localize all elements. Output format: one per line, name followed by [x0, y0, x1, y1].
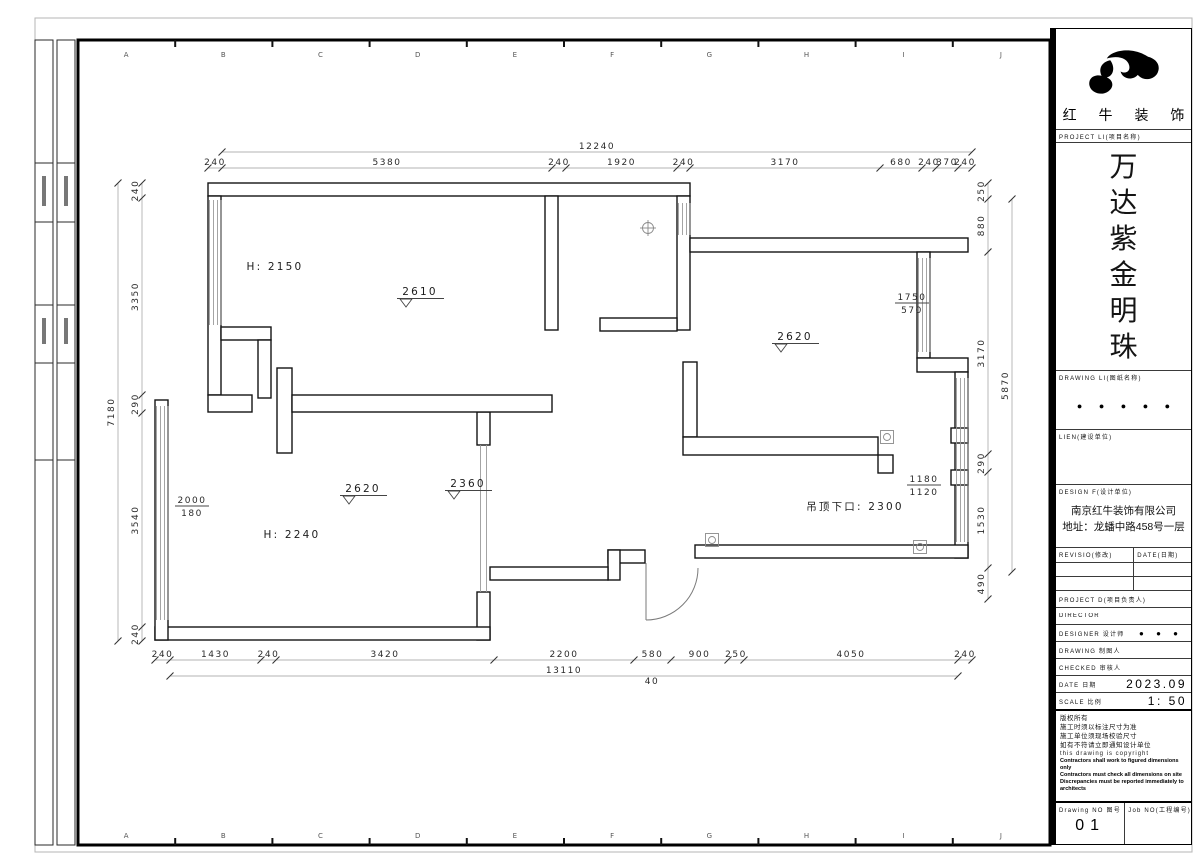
dimension-label: 240: [673, 158, 695, 168]
dimension-label: 1530: [977, 506, 987, 535]
drawing-sheet: AABBCCDDEEFFGGHHIIJJ: [0, 0, 1200, 860]
project-label: PROJECT LI(项目名称): [1056, 129, 1191, 142]
revision-row: [1056, 562, 1191, 576]
dimension-label: 1920: [607, 158, 636, 168]
dimension-label: 3170: [771, 158, 800, 168]
note-line: Contractors must check all dimensions on…: [1060, 772, 1189, 779]
grid-letter-bottom: B: [221, 832, 227, 840]
room-label: H: 2150: [247, 261, 304, 273]
room-label: 吊顶下口: 2300: [806, 501, 904, 513]
director-row: DIRECTOR: [1056, 607, 1191, 624]
design-firm-address: 地址：龙蟠中路458号一层: [1056, 519, 1191, 535]
revision-label: REVISIO(修改): [1056, 548, 1134, 562]
drawing-no-value: 01: [1056, 817, 1124, 835]
dim-chain-left-outer: 7180: [107, 180, 122, 645]
designer-label: DESIGNER 设计师: [1056, 629, 1124, 638]
elevation-label: 2610: [402, 286, 438, 298]
grid-letter-top: I: [903, 51, 906, 59]
grid-letter-top: A: [124, 51, 130, 59]
drawing-number-row: Drawing NO 图号 01 Job NO(工程编号): [1056, 801, 1191, 844]
client-label: LIEN(建设单位): [1056, 429, 1191, 442]
dimension-label: 3170: [977, 339, 987, 368]
date-value: 2023.09: [1126, 677, 1191, 691]
date-row: DATE 日期 2023.09: [1056, 675, 1191, 692]
client-value-space: [1056, 442, 1191, 484]
project-name-char: 珠: [1109, 329, 1137, 365]
grid-letter-bottom: J: [999, 832, 1003, 840]
revision-header: REVISIO(修改) DATE(日期): [1056, 547, 1191, 562]
dimension-label: 12240: [579, 142, 615, 152]
grid-letter-bottom: F: [610, 832, 615, 840]
grid-letter-bottom: G: [707, 832, 713, 840]
copyright-notes: 版权所有 施工时须以标注尺寸为准 施工单位须现场校验尺寸 如有不符请立即通知设计…: [1056, 709, 1191, 801]
dimension-label: 240: [152, 650, 174, 660]
dimension-label: 240: [204, 158, 226, 168]
grid-letter-top: F: [610, 51, 615, 59]
job-no-label: Job NO(工程编号): [1125, 803, 1191, 814]
grid-letter-top: J: [999, 51, 1003, 59]
stacked-dim-top: 2000: [178, 496, 207, 506]
grid-letter-top: B: [221, 51, 227, 59]
dimension-label: 5380: [373, 158, 402, 168]
grid-letter-bottom: I: [903, 832, 906, 840]
floor-drain-icon: [881, 431, 894, 444]
walls: [155, 183, 968, 640]
elevation-triangle-icon: [400, 299, 412, 307]
stacked-dim-top: 1180: [910, 475, 939, 485]
title-block: 红 牛 装 饰 PROJECT LI(项目名称) 万 达 紫 金 明 珠 DRA…: [1056, 28, 1192, 845]
elevation-triangle-icon: [775, 344, 787, 352]
dim-chain-bottom-overall: 13110: [167, 666, 962, 680]
dimension-label: 3420: [371, 650, 400, 660]
project-name-char: 达: [1109, 185, 1137, 221]
dimension-label: 240: [954, 650, 976, 660]
stacked-dim-bottom: 180: [181, 509, 203, 519]
dim-chain-bottom-row: 2401430240342022005809002504050240: [152, 650, 976, 664]
scale-row: SCALE 比例 1: 50: [1056, 692, 1191, 709]
date-label: DATE 日期: [1056, 680, 1097, 689]
dimension-label: 7180: [107, 398, 117, 427]
dimension-label: 880: [977, 215, 987, 237]
revision-row: [1056, 576, 1191, 590]
project-director-row: PROJECT D(项目负责人): [1056, 590, 1191, 607]
project-name-char: 金: [1109, 257, 1137, 293]
stacked-dim-top: 1750: [898, 293, 927, 303]
designer-row: DESIGNER 设计师 ● ● ●: [1056, 624, 1191, 641]
elevation-label: 2620: [777, 331, 813, 343]
grid-letter-bottom: D: [415, 832, 421, 840]
dimension-label: 290: [131, 393, 141, 415]
scale-label: SCALE 比例: [1056, 697, 1102, 706]
company-logo-box: 红 牛 装 饰: [1056, 29, 1191, 129]
dim-chain-left-row: 24033502903540240: [131, 180, 146, 645]
drawing-by-label: DRAWING 制图人: [1056, 646, 1121, 655]
grid-letter-bottom: C: [318, 832, 324, 840]
grid-letter-top: H: [804, 51, 810, 59]
elevation-label: 2620: [345, 483, 381, 495]
dimension-label: 490: [977, 573, 987, 595]
note-line: 版权所有: [1060, 714, 1189, 723]
drawing-list-label: DRAWING LI(图纸名称): [1056, 370, 1191, 383]
revision-date-label: DATE(日期): [1134, 548, 1191, 562]
dimension-label: 900: [689, 650, 711, 660]
grid-letter-bottom: A: [124, 832, 130, 840]
grid-letter-bottom: E: [513, 832, 518, 840]
stacked-dim-bottom: 1120: [910, 488, 939, 498]
floor-plan-canvas: AABBCCDDEEFFGGHHIIJJ: [0, 0, 1200, 860]
dim-chain-right-outer: 5870: [1001, 196, 1016, 576]
red-bull-logo-icon: [1081, 45, 1167, 103]
dim-chain-top-overall: 12240: [219, 142, 976, 156]
note-line: 如有不符请立即通知设计单位: [1060, 741, 1189, 750]
project-name-char: 紫: [1109, 221, 1137, 257]
dimension-label: 250: [977, 180, 987, 202]
dim-chain-right-row: 25088031702901530490: [977, 180, 992, 603]
note-line: Discrepancies must be reported immediate…: [1060, 779, 1189, 793]
dimension-label: 3540: [131, 506, 141, 535]
project-name-char: 明: [1109, 293, 1137, 329]
elevation-triangle-icon: [343, 496, 355, 504]
drawing-by-row: DRAWING 制图人: [1056, 641, 1191, 658]
grid-letter-bottom: H: [804, 832, 810, 840]
company-name: 红 牛 装 饰: [1063, 105, 1194, 125]
dimension-label: 3350: [131, 282, 141, 311]
checked-row: CHECKED 审核人: [1056, 658, 1191, 675]
project-director-label: PROJECT D(项目负责人): [1056, 595, 1146, 604]
grid-letter-top: E: [513, 51, 518, 59]
dimension-label: 250: [725, 650, 747, 660]
dimension-label: 290: [977, 452, 987, 474]
dimension-label: 240: [954, 158, 976, 168]
grid-letter-top: G: [707, 51, 713, 59]
ceiling-point-icon: [640, 220, 656, 236]
director-label: DIRECTOR: [1056, 613, 1100, 619]
dimension-label: 240: [548, 158, 570, 168]
dimension-label: 40: [645, 677, 659, 687]
dimension-label: 4050: [837, 650, 866, 660]
design-firm-info: 南京红牛装饰有限公司 地址：龙蟠中路458号一层: [1056, 497, 1191, 547]
project-name-char: 万: [1109, 149, 1137, 185]
design-firm-name: 南京红牛装饰有限公司: [1056, 503, 1191, 519]
note-line: this drawing is copyright: [1060, 750, 1189, 758]
dimension-label: 240: [258, 650, 280, 660]
note-line: Contractors shall work to figured dimens…: [1060, 758, 1189, 772]
note-line: 施工时须以标注尺寸为准: [1060, 723, 1189, 732]
entry-door: [646, 563, 698, 620]
drawing-no-label: Drawing NO 图号: [1056, 803, 1124, 814]
scale-value: 1: 50: [1148, 694, 1191, 708]
dimension-annotations: 1224024053802401920240317068024037024071…: [107, 142, 1016, 687]
dimension-label: 2200: [550, 650, 579, 660]
grid-letter-top: D: [415, 51, 421, 59]
designer-value: ● ● ●: [1139, 629, 1191, 638]
dimension-label: 240: [131, 180, 141, 202]
dimension-label: 680: [890, 158, 912, 168]
elevation-triangle-icon: [448, 491, 460, 499]
project-name: 万 达 紫 金 明 珠: [1056, 142, 1191, 370]
elevation-label: 2360: [450, 478, 486, 490]
dim-chain-top-row: 240538024019202403170680240370240: [204, 158, 976, 172]
dimension-label: 1430: [201, 650, 230, 660]
grid-letter-top: C: [318, 51, 324, 59]
dimension-label: 240: [131, 623, 141, 645]
checked-label: CHECKED 审核人: [1056, 663, 1121, 672]
dimension-label: 580: [642, 650, 664, 660]
dimension-label: 13110: [546, 666, 582, 676]
drawing-list-dots: ● ● ● ● ●: [1056, 383, 1191, 429]
design-firm-label: DESIGN F(设计单位): [1056, 484, 1191, 497]
dimension-label: 5870: [1001, 371, 1011, 400]
note-line: 施工单位须现场校验尺寸: [1060, 732, 1189, 741]
stacked-dim-bottom: 570: [901, 306, 923, 316]
room-label: H: 2240: [264, 529, 321, 541]
